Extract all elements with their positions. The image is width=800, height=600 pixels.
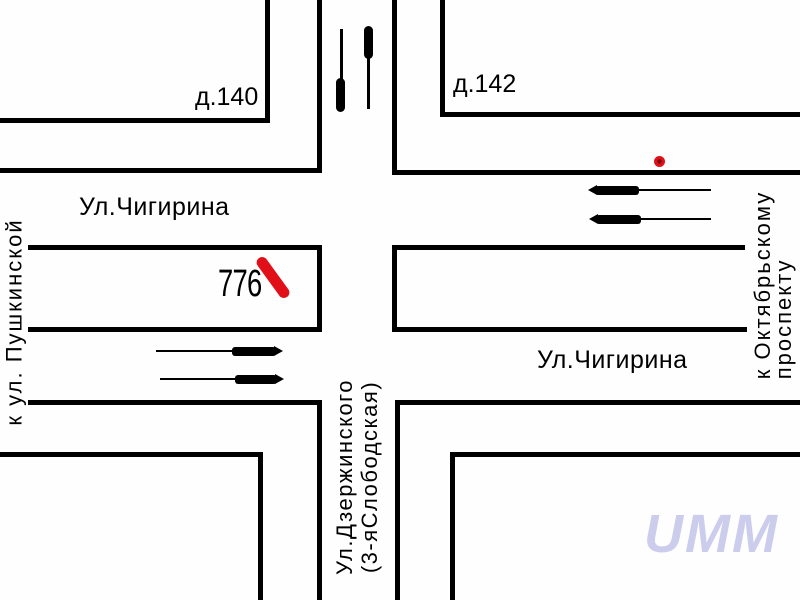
arrow-tip-icon [275,374,284,384]
road-north-edge-west [0,168,322,173]
building-se-left-edge [450,452,455,600]
direction-arrow-right-icon [160,374,284,384]
median-east-end-edge [392,245,397,332]
lane-arrow-down-head-icon [336,78,345,112]
building-142-label: д.142 [453,71,516,97]
building-sw-top-edge [0,452,263,457]
direction-label-pushkinskoy: к ул. Пушкинской [2,218,25,425]
direction-arrow-left-icon [589,214,711,224]
red-stop-dot-icon [654,156,665,167]
street-label-chigirina-east: Ул.Чигирина [537,347,688,373]
intersection-map: д.140 д.142 Ул.Чигирина Ул.Чигирина 776 … [0,0,800,600]
building-142-bottom-edge [440,112,800,117]
road-north-edge-east [392,170,800,175]
direction-label-oktyabrsky: к Октябрьскому проспекту [752,191,794,380]
watermark-umm: UMM [644,506,779,563]
street-label-chigirina-west: Ул.Чигирина [79,194,230,220]
vstreet-bottom-west-edge [317,400,322,600]
building-142-left-edge [440,0,445,117]
median-west-bottom-edge [28,327,322,332]
street-label-dzerzhinskogo: Ул.Дзержинского (3-яСлободская) [332,379,382,575]
building-140-right-edge [265,0,270,123]
building-sw-right-edge [258,452,263,600]
vstreet-bottom-east-edge [395,400,400,600]
building-140-bottom-edge [0,118,270,123]
direction-arrow-left-icon [588,185,711,195]
arrow-tip-icon [274,346,283,356]
median-east-bottom-edge [392,327,747,332]
direction-arrow-right-icon [156,346,283,356]
road-south-edge-west [28,400,322,405]
road-south-edge-east [395,400,800,405]
lane-arrow-up-icon [367,55,370,109]
route-number-label: 776 [218,265,261,305]
building-se-top-edge [450,452,800,457]
median-east-top-edge [392,245,745,250]
building-140-label: д.140 [195,84,258,110]
vstreet-top-east-edge [392,0,397,175]
median-west-top-edge [28,245,322,250]
vstreet-top-west-edge [317,0,322,173]
median-west-end-edge [317,245,322,332]
